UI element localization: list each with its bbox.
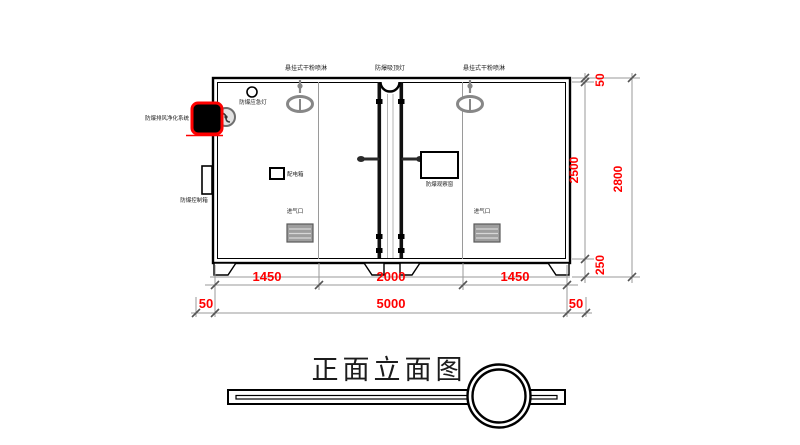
label-distribution-box: 配电箱 [287, 170, 304, 178]
dim-right-overall: 2800 [611, 165, 625, 192]
emergency-light-icon [247, 87, 257, 97]
air-inlet-right-grille [474, 224, 500, 242]
dim-bottom-right: 1450 [501, 269, 530, 284]
label-purge-system: 防爆排风净化系统 [145, 114, 190, 122]
label-ceiling-light: 防爆吸顶灯 [375, 64, 405, 72]
label-air-inlet-left: 进气口 [287, 207, 304, 215]
elevation-drawing-canvas: 1450 2000 1450 50 5000 50 50 2500 250 28… [0, 0, 800, 445]
door-post-right [400, 82, 404, 258]
dim-right-top: 50 [593, 73, 607, 87]
dim-right-middle: 2500 [567, 156, 581, 183]
door-post-left [378, 82, 382, 258]
door-handle-left-knob [357, 156, 365, 162]
right-dimension-lines [572, 73, 640, 283]
dim-offset-right: 50 [569, 296, 583, 311]
dim-right-bottom: 250 [593, 255, 607, 275]
air-inlet-left-grille [287, 224, 313, 242]
label-air-inlet-right: 进气口 [474, 207, 491, 215]
observation-window [421, 152, 458, 178]
control-box [202, 166, 212, 194]
dim-bottom-left: 1450 [253, 269, 282, 284]
drawing-title: 正面立面图 [312, 355, 467, 385]
label-control-box: 防爆控制箱 [180, 196, 208, 204]
title-circle-inner [473, 370, 526, 423]
drawing-svg: 1450 2000 1450 50 5000 50 50 2500 250 28… [0, 0, 800, 445]
label-sprinkler-left: 悬挂式干粉喷淋 [285, 64, 327, 72]
dim-total-width: 5000 [377, 296, 406, 311]
label-emergency-light: 防爆应急灯 [239, 98, 267, 106]
label-sprinkler-right: 悬挂式干粉喷淋 [463, 64, 505, 72]
dim-bottom-center: 2000 [377, 269, 406, 284]
distribution-box [270, 168, 284, 179]
ceiling-lamp-icon [381, 82, 400, 92]
label-observation-window: 防爆观察窗 [426, 180, 454, 188]
dim-offset-left: 50 [199, 296, 213, 311]
purge-unit-highlight[interactable] [192, 103, 222, 134]
